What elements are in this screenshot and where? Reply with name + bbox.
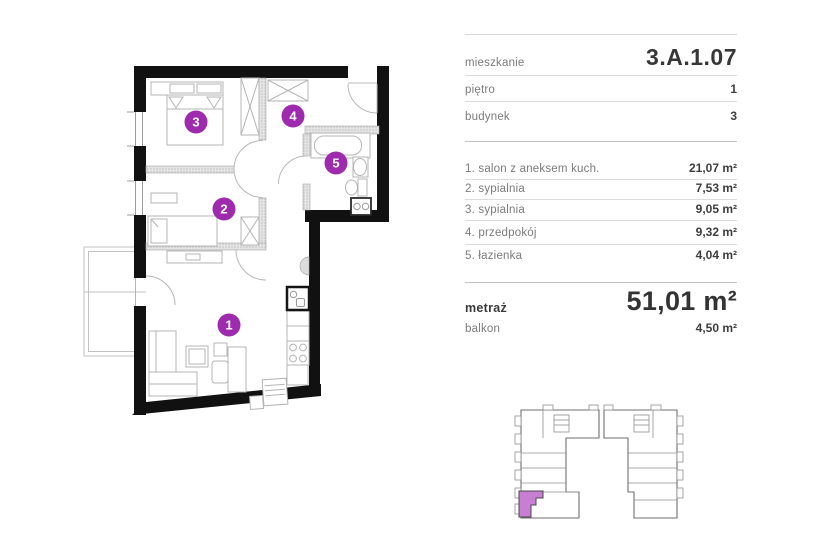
window-left-2 (127, 181, 143, 215)
room-label: 1. salon z aneksem kuch. (465, 163, 600, 175)
info-row-pietro: piętro 1 (465, 76, 737, 102)
info-label: budynek (465, 111, 510, 123)
svg-text:2: 2 (220, 202, 227, 217)
wall-column (300, 257, 309, 275)
balcony-value: 4,50 m² (696, 321, 737, 335)
svg-text:5: 5 (332, 156, 339, 171)
total-area-row: metraż 51,01 m² (465, 286, 737, 317)
info-row-mieszkanie: mieszkanie 3.A.1.07 (465, 35, 737, 76)
floor-plan: 1 2 3 4 5 (0, 0, 455, 543)
room-area: 21,07 m² (689, 161, 737, 175)
balcony-label: balkon (465, 323, 500, 335)
total-area-value: 51,01 m² (627, 288, 737, 315)
bathroom-sink (353, 157, 368, 177)
svg-text:1: 1 (225, 318, 232, 333)
balcony-row: balkon 4,50 m² (465, 318, 737, 337)
balcony-door (136, 276, 176, 306)
info-label: piętro (465, 84, 495, 96)
room-area: 9,05 m² (696, 202, 737, 216)
window-left-1 (127, 112, 143, 146)
section-divider (465, 141, 737, 142)
room-area: 7,53 m² (696, 181, 737, 195)
room-label: 5. łazienka (465, 250, 522, 262)
section-divider (465, 282, 737, 283)
room-marker-2: 2 (213, 198, 236, 221)
right-wing-outline (604, 410, 677, 518)
room-label: 4. przedpokój (465, 227, 537, 239)
floorplan-card: 1 2 3 4 5 mieszkanie 3.A.1.07 piętro 1 (0, 0, 819, 543)
info-row-budynek: budynek 3 (465, 102, 737, 128)
room-marker-3: 3 (185, 111, 208, 134)
info-value: 1 (730, 82, 737, 96)
room-marker-1: 1 (218, 314, 241, 337)
svg-text:4: 4 (289, 109, 297, 124)
wardrobe-icons (241, 78, 308, 245)
room-marker-5: 5 (325, 152, 348, 175)
room-row-salon: 1. salon z aneksem kuch. 21,07 m² (465, 159, 737, 180)
total-area-label: metraż (465, 301, 507, 315)
desk-and-chair (212, 343, 246, 392)
svg-text:3: 3 (192, 115, 199, 130)
room-area: 4,04 m² (696, 248, 737, 262)
room-marker-4: 4 (282, 105, 305, 128)
room-row-sypialnia-2: 2. sypialnia 7,53 m² (465, 180, 737, 200)
washing-machine (351, 198, 371, 215)
building-minimap (503, 396, 698, 538)
bed-single (148, 193, 217, 246)
unit-code: 3.A.1.07 (646, 46, 737, 69)
room-row-sypialnia-3: 3. sypialnia 9,05 m² (465, 200, 737, 221)
info-value: 3 (730, 109, 737, 123)
room-area: 9,32 m² (696, 225, 737, 239)
room-label: 3. sypialnia (465, 204, 525, 216)
stove (287, 341, 309, 365)
sideboard (167, 251, 222, 263)
room-row-przedpokoj: 4. przedpokój 9,32 m² (465, 221, 737, 245)
bed-double (151, 82, 223, 145)
toilet (346, 179, 368, 196)
info-label: mieszkanie (465, 57, 525, 69)
room-row-lazienka: 5. łazienka 4,04 m² (465, 245, 737, 266)
room-label: 2. sypialnia (465, 183, 525, 195)
kitchen-sink (287, 287, 309, 310)
coffee-table (186, 346, 208, 367)
unit-info-panel: mieszkanie 3.A.1.07 piętro 1 budynek 3 1… (465, 0, 737, 360)
